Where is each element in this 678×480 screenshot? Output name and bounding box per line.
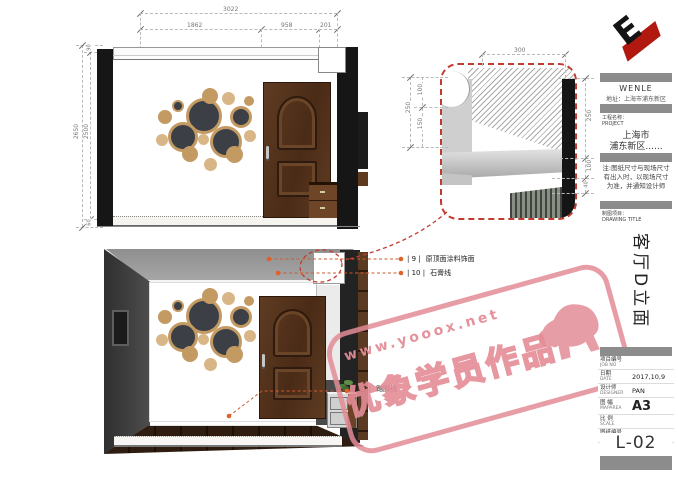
bookshelf-edge [358, 252, 368, 440]
left-wall [104, 249, 150, 454]
cad-sheet: 3022 1862 958 201 2650 2500 90 60 [0, 0, 678, 480]
ground-strip [114, 436, 342, 447]
maparea-value: A3 [632, 399, 674, 414]
watermark-stamp: www.yooox.net 优象学员作品 [321, 259, 636, 458]
dim-height-outer: 2650 [73, 123, 80, 140]
company-address: 地址：上海市浦东新区 [600, 94, 672, 103]
dim-height-top: 90 [87, 43, 94, 51]
annotation-36-num: | 36 | [353, 385, 371, 393]
tb-row-scale: 比 例SCALE [598, 415, 674, 429]
wall-frame [112, 310, 129, 346]
floor-line [97, 226, 360, 227]
sheet-number: L-02 [600, 433, 672, 453]
annotation-9-num: | 9 | [407, 255, 421, 263]
drawing-title-label: 制图项目： DRAWING TITLE [602, 211, 641, 223]
left-pillar [97, 49, 113, 227]
cabinet-edge [358, 172, 368, 186]
dim-seg3: 201 [319, 22, 332, 29]
wall-section-bar [562, 79, 577, 220]
wall-art [158, 88, 258, 176]
ceiling-box [318, 47, 346, 73]
dim-seg1: 1862 [186, 22, 203, 29]
dim-height-inner: 2500 [83, 123, 90, 140]
annotation-9: | 9 | 原顶面涂料饰面 [407, 255, 475, 263]
dim-total-width: 3022 [222, 6, 239, 13]
plant [338, 380, 354, 392]
ceiling-band [113, 47, 345, 60]
watermark-text: 优象学员作品 [340, 321, 561, 425]
detail-dim-right-lower: 40 [584, 180, 591, 188]
right-pillar [337, 47, 358, 229]
dim-seg2: 958 [280, 22, 293, 29]
annotation-10-label: 石膏线 [430, 269, 451, 277]
detail-dim-left-outer: 250 [405, 101, 412, 114]
designer-value: PAN [632, 387, 674, 395]
tv-edge [358, 112, 368, 169]
nightstand [309, 182, 337, 218]
door-handle [266, 146, 269, 159]
annotation-36: | 36 | 踢脚线 [353, 385, 397, 393]
drawing-title-vertical: 客厅D立面 [655, 233, 678, 258]
side-cabinet [327, 392, 357, 428]
detail-dim-top: 300 [513, 47, 526, 54]
door-handle [262, 354, 265, 367]
dim-line [140, 13, 337, 14]
project-label: 工程名称： PROJECT [602, 115, 627, 127]
ceiling-line [113, 55, 345, 56]
detail-callout-box [440, 63, 577, 220]
annotation-9-label: 原顶面涂料饰面 [426, 255, 475, 263]
company-name: WENLE [600, 84, 672, 93]
detail-dim-left-lower: 150 [417, 117, 424, 130]
project-line2: 浦东新区...... [600, 139, 672, 152]
detail-dim-right-mid: 100 [586, 159, 593, 172]
tb-row-maparea: 图 幅MAPAREA A3 [598, 398, 674, 415]
ribbed-panel [510, 187, 562, 220]
site-note: 注:图纸尺寸与现场尺寸有出入时，以现场尺寸为准，并通知设计师 [602, 164, 670, 191]
annotation-10: | 10 | 石膏线 [407, 269, 451, 277]
titleblock-table: 项目编号JOB NO 日期DATE 2017,10,9 设计师DESIGNER … [598, 356, 674, 443]
detail-dim-right-upper: 250 [586, 109, 593, 122]
door [259, 296, 326, 419]
corner-detail-box [313, 252, 345, 284]
wall-art [158, 288, 258, 376]
company-logo: E [601, 0, 672, 70]
dim-line [140, 29, 337, 30]
date-value: 2017,10,9 [632, 373, 674, 381]
annotation-36-label: 踢脚线 [376, 385, 397, 393]
hatch-ceiling-section [468, 68, 577, 157]
tb-row-jobno: 项目编号JOB NO [598, 356, 674, 370]
annotation-10-num: | 10 | [407, 269, 425, 277]
detail-dim-left-upper: 100 [417, 83, 424, 96]
tb-row-date: 日期DATE 2017,10,9 [598, 370, 674, 384]
tb-row-designer: 设计师DESIGNER PAN [598, 384, 674, 398]
dim-height-bottom: 60 [87, 218, 94, 226]
